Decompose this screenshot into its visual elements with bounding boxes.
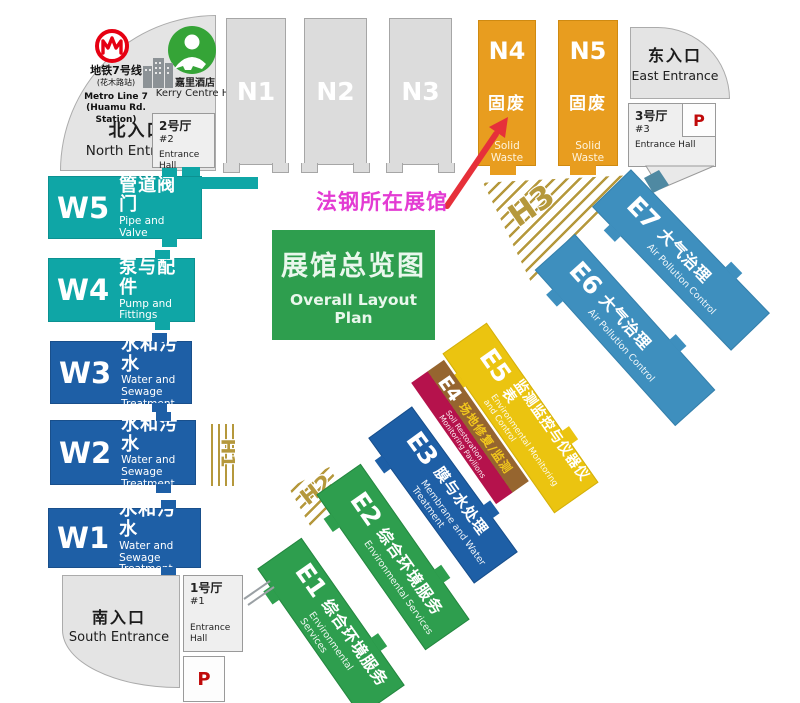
hall-w3-code: W3 bbox=[59, 356, 111, 390]
hall-w5: W5 管道阀门 Pipe and Valve bbox=[48, 176, 202, 239]
hall-w5-cn: 管道阀门 bbox=[119, 176, 193, 216]
hall3-funnel bbox=[646, 166, 714, 189]
map-title-en: Overall Layout Plan bbox=[272, 291, 435, 327]
hall-n4-en: Solid Waste bbox=[479, 140, 535, 164]
hall-n5-en: Solid Waste bbox=[559, 140, 617, 164]
hall1-cn: 1号厅 bbox=[190, 581, 236, 596]
map-title-box: 展馆总览图 Overall Layout Plan bbox=[272, 230, 435, 340]
hall-n3-code: N3 bbox=[401, 77, 439, 106]
parking-badge-east: P bbox=[682, 103, 716, 137]
exhibition-layout-map: 地铁7号线 (花木路站) Metro Line 7 (Huamu Rd. Sta… bbox=[0, 0, 800, 703]
hall-w2: W2 水和污水 Water and Sewage Treatment bbox=[50, 420, 196, 485]
hall-w2-code: W2 bbox=[59, 436, 111, 470]
hall-n2: N2 bbox=[304, 18, 367, 165]
hall-e2-code: E2 bbox=[344, 487, 388, 532]
hall-w4-en: Pump and Fittings bbox=[119, 299, 186, 322]
hall-e5-code: E5 bbox=[474, 343, 518, 388]
hall-w4-cn: 泵与配件 bbox=[119, 258, 186, 298]
hall-w1-en: Water and Sewage Treatment bbox=[119, 541, 192, 576]
south-entrance-cn: 南入口 bbox=[63, 604, 175, 628]
annotation-label: 法钢所在展馆 bbox=[316, 186, 448, 216]
hall-e7-code: E7 bbox=[621, 191, 666, 236]
hall-e3-code: E3 bbox=[400, 426, 444, 471]
parking-p-icon: P bbox=[197, 669, 210, 690]
east-entrance-area: 东入口 East Entrance bbox=[630, 27, 730, 99]
hall-w5-text: 管道阀门 Pipe and Valve bbox=[119, 176, 193, 240]
south-entrance-label: 南入口 South Entrance bbox=[63, 604, 175, 645]
hall-n5: N5 固废 Solid Waste bbox=[558, 20, 618, 166]
hall-n4: N4 固废 Solid Waste bbox=[478, 20, 536, 166]
hall1-en: Entrance Hall bbox=[190, 623, 236, 646]
hall1-num: #1 bbox=[190, 596, 236, 609]
hall-w2-text: 水和污水 Water and Sewage Treatment bbox=[121, 415, 187, 490]
south-entrance-en: South Entrance bbox=[63, 630, 175, 645]
hall-w5-code: W5 bbox=[57, 191, 109, 225]
south-entrance-area: 南入口 South Entrance bbox=[62, 575, 180, 688]
entrance-hall-1: 1号厅 #1 Entrance Hall bbox=[183, 575, 243, 652]
hall-n4-cn: 固废 bbox=[479, 89, 535, 114]
hall-n4-code: N4 bbox=[479, 37, 535, 65]
hall-w4-code: W4 bbox=[57, 273, 109, 307]
hall-w1: W1 水和污水 Water and Sewage Treatment bbox=[48, 508, 201, 568]
hall-n1-code: N1 bbox=[237, 77, 275, 106]
hall-w1-cn: 水和污水 bbox=[119, 500, 192, 540]
metro-line-cn: 地铁7号线 bbox=[67, 64, 165, 78]
hall-w3-en: Water and Sewage Treatment bbox=[121, 375, 183, 410]
parking-p-icon: P bbox=[693, 111, 705, 130]
hall3-en: Entrance Hall bbox=[635, 140, 709, 151]
hall-w4: W4 泵与配件 Pump and Fittings bbox=[48, 258, 195, 322]
hall-n3: N3 bbox=[389, 18, 452, 165]
hall-n2-code: N2 bbox=[316, 77, 354, 106]
east-entrance-cn: 东入口 bbox=[631, 42, 719, 66]
entrance-hall-2: 2号厅 #2 Entrance Hall bbox=[152, 113, 215, 168]
hall-w2-en: Water and Sewage Treatment bbox=[121, 455, 187, 490]
parking-badge-south: P bbox=[183, 656, 225, 702]
hall-e6-code: E6 bbox=[563, 256, 608, 301]
hall-w4-text: 泵与配件 Pump and Fittings bbox=[119, 258, 186, 322]
hall-w3-text: 水和污水 Water and Sewage Treatment bbox=[121, 335, 183, 410]
east-entrance-en: East Entrance bbox=[631, 68, 719, 83]
zone-h1-label: H1 bbox=[217, 438, 239, 467]
hall-n1: N1 bbox=[226, 18, 286, 165]
hall-n5-code: N5 bbox=[559, 37, 617, 65]
hall-w3-cn: 水和污水 bbox=[121, 335, 183, 375]
hotel-name-cn: 嘉里酒店 bbox=[175, 74, 215, 89]
hall2-num: #2 bbox=[159, 134, 208, 147]
hall-w3: W3 水和污水 Water and Sewage Treatment bbox=[50, 341, 192, 404]
hall-n5-cn: 固废 bbox=[559, 89, 617, 114]
east-entrance-label: 东入口 East Entrance bbox=[631, 42, 719, 83]
hall-w1-code: W1 bbox=[57, 521, 109, 555]
hall2-cn: 2号厅 bbox=[159, 119, 208, 134]
hall-w5-en: Pipe and Valve bbox=[119, 216, 193, 239]
hall-e1-code: E1 bbox=[289, 558, 333, 603]
w5-corridor bbox=[201, 177, 258, 189]
map-title-cn: 展馆总览图 bbox=[281, 244, 426, 283]
hall-w1-text: 水和污水 Water and Sewage Treatment bbox=[119, 500, 192, 575]
hall-w2-cn: 水和污水 bbox=[121, 415, 187, 455]
